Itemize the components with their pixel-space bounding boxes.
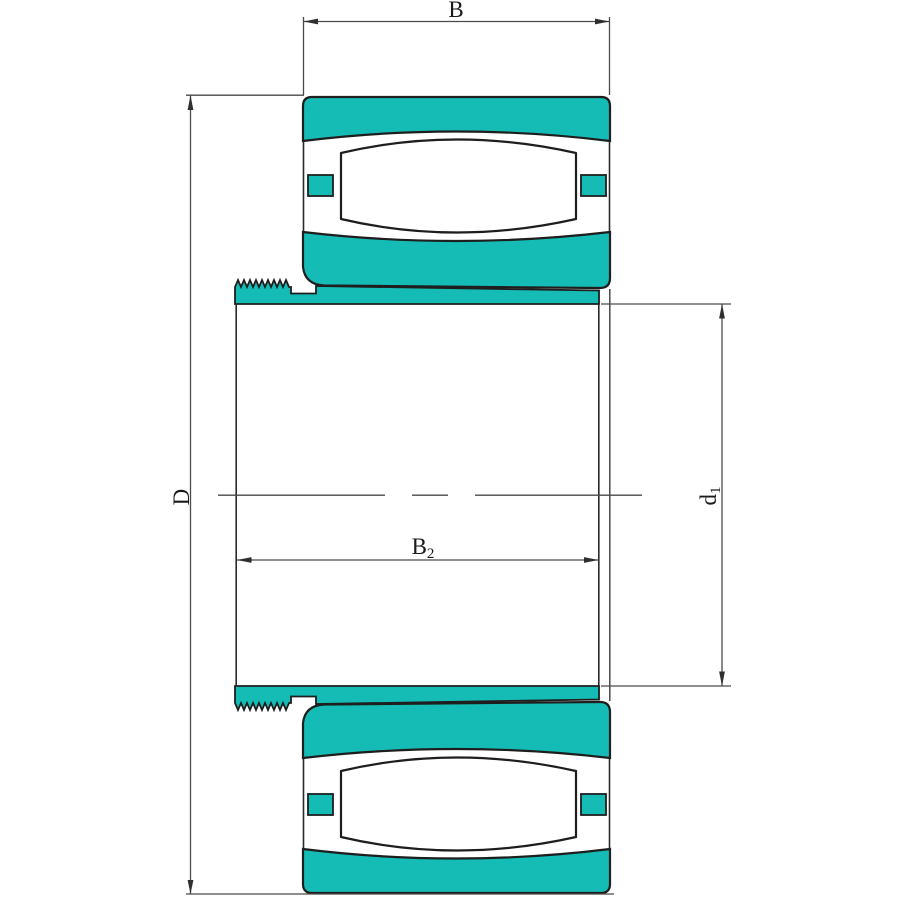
bearing-top-half [235, 97, 610, 304]
bearing-drawing-canvas: B D B2 d1 [0, 0, 900, 900]
bearing-bottom-half [235, 686, 610, 893]
d1-label: d1 [696, 487, 724, 506]
dimension-b2: B2 [237, 534, 599, 563]
outer-ring-top [303, 97, 610, 141]
b-arrow-left [304, 19, 319, 25]
dimension-b: B [304, 0, 610, 95]
d1-arrow-bottom [719, 672, 725, 687]
b2-label: B2 [412, 534, 435, 562]
b-arrow-right [595, 19, 610, 25]
cage-block-top-right [581, 175, 606, 196]
bearing-cross-section-diagram: B D B2 d1 [0, 0, 900, 900]
b-label: B [448, 0, 463, 22]
inner-ring-top [303, 232, 610, 288]
b2-arrow-right [584, 557, 599, 563]
d-label: D [169, 489, 194, 506]
spherical-roller-top [341, 140, 576, 233]
d1-arrow-top [719, 304, 725, 319]
b2-arrow-left [237, 557, 252, 563]
cage-block-top-left [308, 175, 333, 196]
d-arrow-top [188, 95, 194, 110]
d-arrow-bottom [188, 880, 194, 894]
